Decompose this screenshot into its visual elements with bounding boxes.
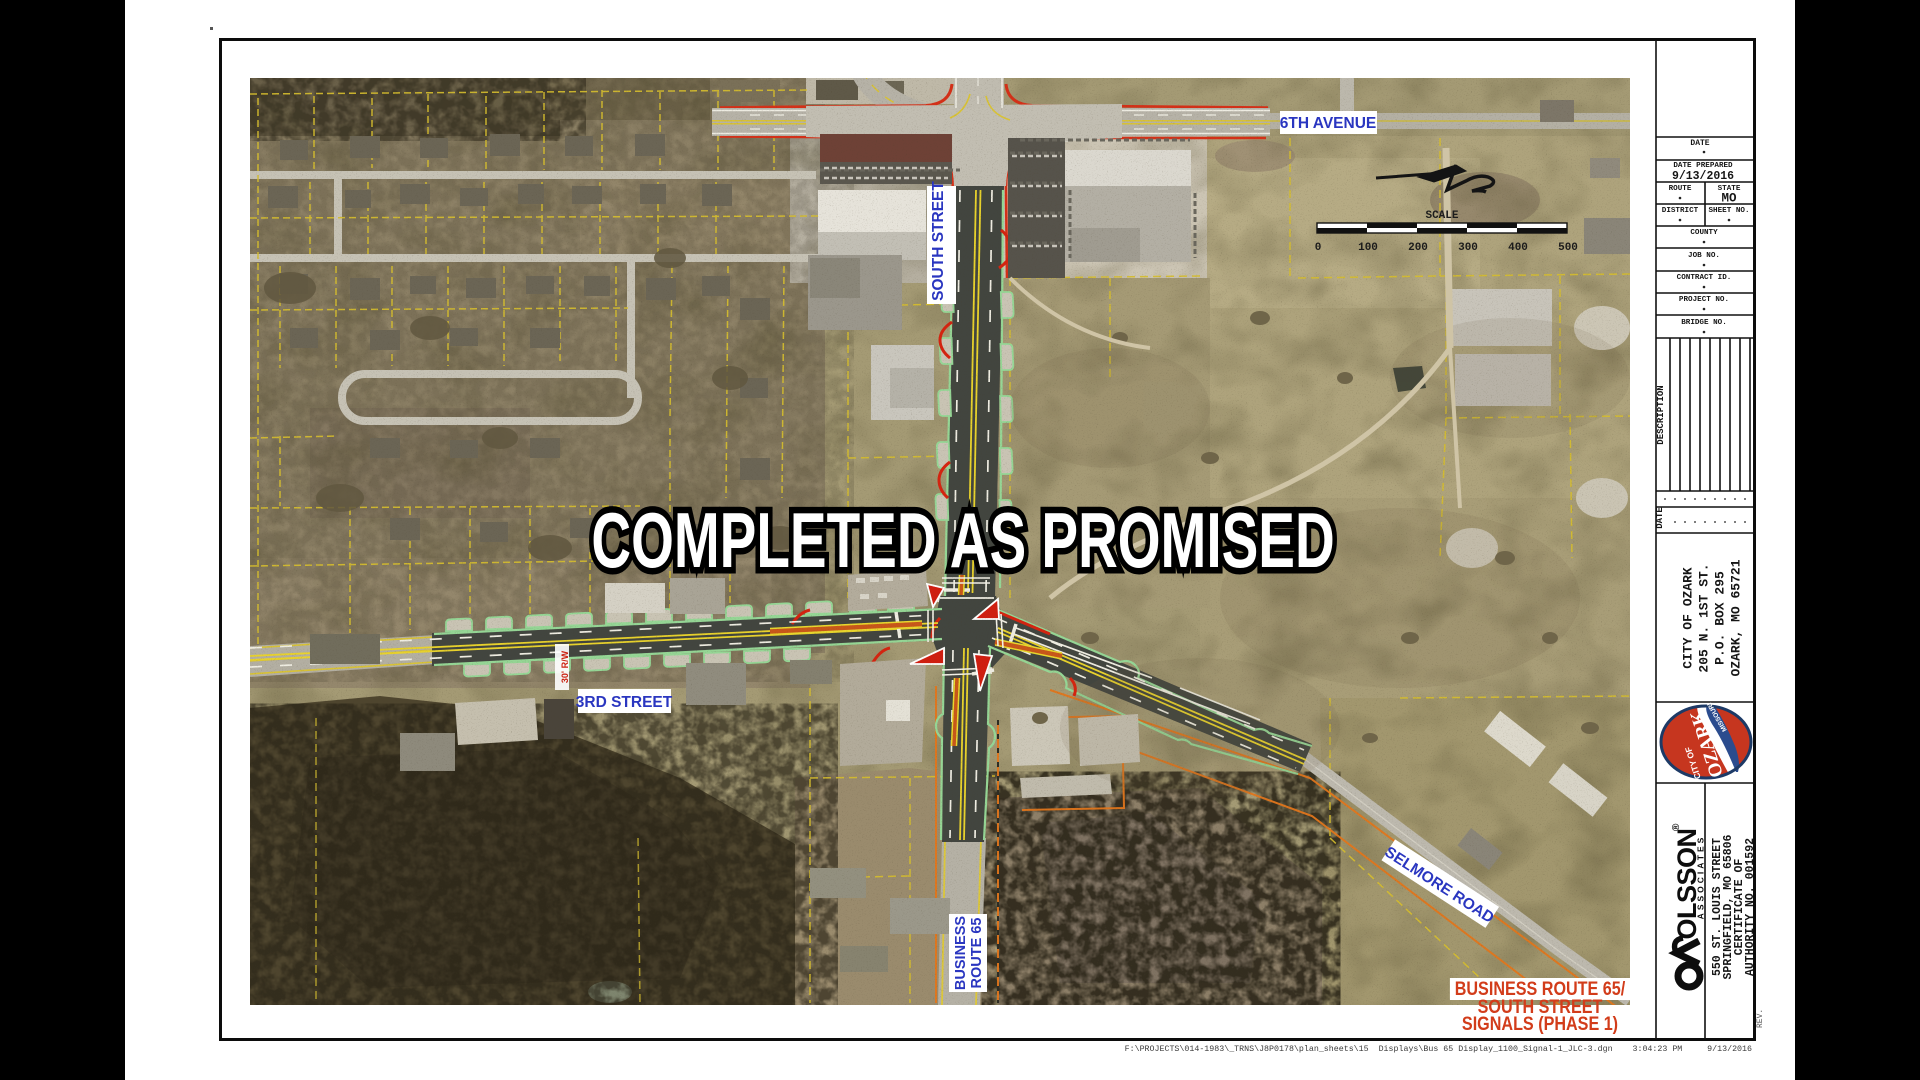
svg-text:COMPLETED AS PROMISED: COMPLETED AS PROMISED [591,498,1334,585]
